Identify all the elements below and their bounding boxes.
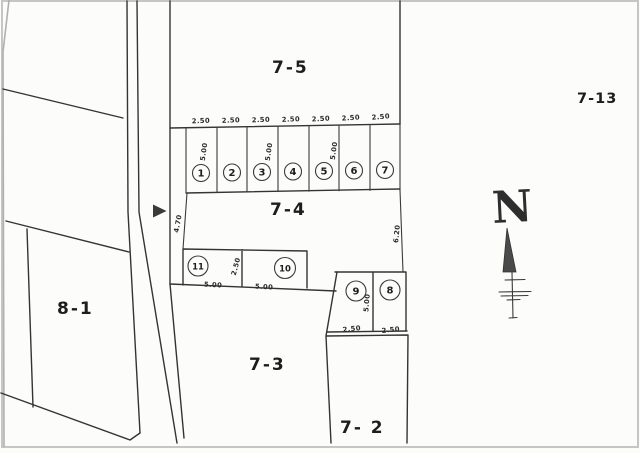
lot-4-width: 2.50: [282, 115, 301, 124]
north-arrow-spike: [503, 228, 516, 272]
lot-3-number: 3: [259, 168, 266, 179]
lot-10-width: 5.00: [255, 283, 274, 292]
scan-border: [2, 0, 638, 447]
lot-11-width: 5.00: [204, 281, 223, 290]
parcel-label-7-4: 7-4: [270, 200, 307, 220]
road-east-line: [137, 1, 177, 443]
north-arrow-stem: [512, 272, 513, 318]
lots-row-depth-labels: 5.00 5.00 5.00: [199, 141, 339, 161]
lot-8-number: 8: [387, 286, 394, 297]
lots-11-10-depth: 2.50: [230, 257, 242, 277]
parcel-8-1-boundary: [1, 89, 140, 440]
lots-row-width-labels: 2.50 2.50 2.50 2.50 2.50 2.50 2.50: [192, 112, 391, 125]
lots-9-8-west-line: [326, 272, 337, 336]
lot-9-width: 2.50: [342, 324, 361, 334]
lot-3-width: 2.50: [252, 116, 271, 125]
north-arrow: N: [491, 181, 534, 318]
lot-5-number: 5: [321, 167, 328, 178]
lots-9-8-labels: 9 8 5.00 2.50 2.50: [342, 280, 400, 335]
parcel-label-7-5: 7-5: [272, 58, 309, 78]
north-label: N: [491, 181, 534, 234]
parcel-8-1-west-line: [27, 229, 33, 407]
plot-plan-drawing: 7-5 7-13 7-4 8-1 7-3 7- 2 2.50 2.50 2.50…: [0, 0, 640, 453]
lots-row-depth-2: 5.00: [264, 142, 274, 161]
lot-1-number: 1: [198, 169, 205, 180]
reference-marker-icon: [153, 205, 167, 218]
west-middle-diagonal: [6, 221, 129, 252]
lot-10-number: 10: [279, 265, 291, 275]
lot-6-width: 2.50: [341, 113, 360, 122]
lots-9-8-depth: 5.00: [362, 293, 372, 312]
plot-plan-page: 7-5 7-13 7-4 8-1 7-3 7- 2 2.50 2.50 2.50…: [0, 0, 640, 453]
lot-9-number: 9: [353, 287, 360, 298]
lot-2-number: 2: [229, 168, 236, 179]
parcel-label-7-13: 7-13: [577, 91, 617, 107]
parcel-label-7-3: 7-3: [249, 355, 286, 375]
paper-left-edge: [3, 0, 9, 447]
parcel-7-3-top-line: [170, 284, 336, 291]
west-lower-diagonal: [1, 393, 140, 440]
lot-7-width: 2.50: [371, 112, 390, 122]
east-side-dimension: 6.20: [392, 224, 402, 243]
scan-border-rect: [2, 1, 638, 447]
lot-6-number: 6: [351, 166, 358, 177]
lot-7-number: 7: [382, 166, 389, 177]
lots-row-depth-3: 5.00: [329, 141, 339, 160]
north-arrow-ticks: [499, 280, 531, 319]
lot-5-width: 2.50: [312, 115, 331, 124]
lots-row-numbers: 1 2 3 4 5 6 7: [193, 162, 394, 182]
lot-2-width: 2.50: [222, 116, 241, 125]
parcel-label-8-1: 8-1: [57, 299, 94, 319]
lot-11-number: 11: [192, 263, 204, 273]
lots-row-bottom-line: [186, 189, 400, 193]
lot-1-width: 2.50: [192, 117, 211, 126]
road-frontage-dimension: 4.70: [172, 214, 183, 233]
lot-divider-lines: [186, 124, 400, 193]
frontage-dimension-line: [183, 193, 187, 249]
lot-4-number: 4: [290, 167, 297, 178]
lot-8-width: 2.50: [381, 325, 400, 335]
parcel-label-7-2: 7- 2: [340, 418, 385, 438]
west-upper-diagonal: [3, 89, 123, 118]
lots-row-depth-1: 5.00: [199, 142, 209, 161]
